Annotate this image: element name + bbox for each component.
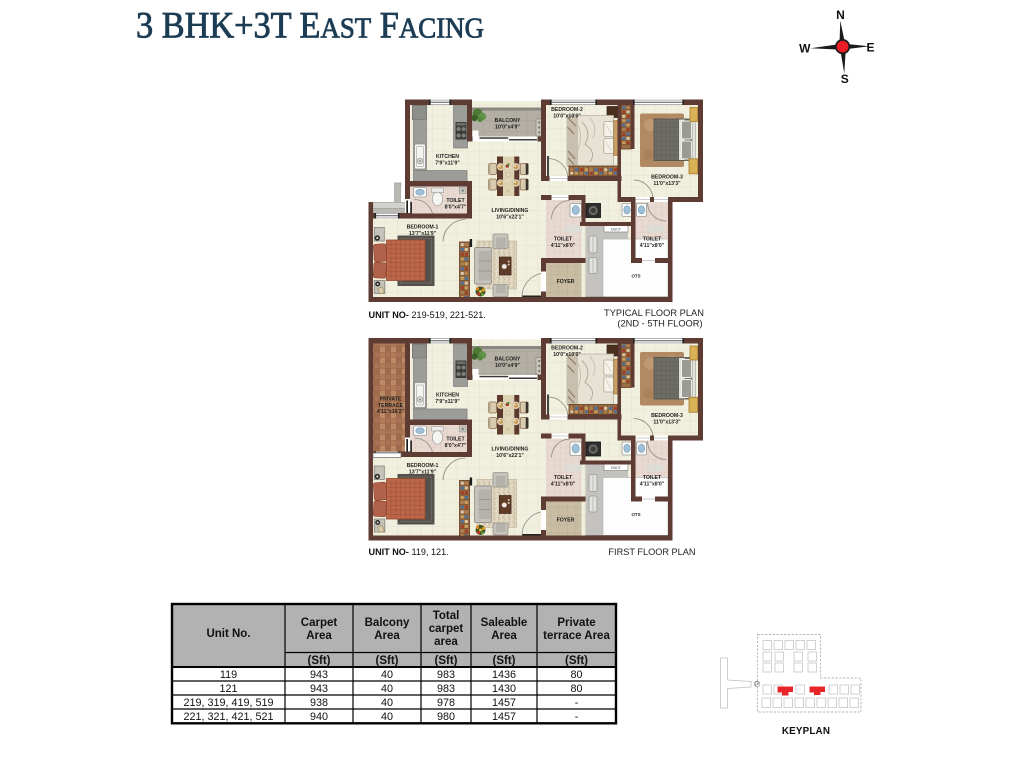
svg-text:3 BHK+3T EAST FACING: 3 BHK+3T EAST FACING <box>136 6 484 47</box>
svg-text:4'11"x16'2": 4'11"x16'2" <box>377 409 405 415</box>
svg-text:OTS: OTS <box>631 274 640 279</box>
svg-text:1430: 1430 <box>492 683 516 695</box>
svg-text:Area: Area <box>306 630 332 642</box>
svg-text:943: 943 <box>310 669 328 681</box>
svg-text:S: S <box>841 72 849 86</box>
svg-text:943: 943 <box>310 683 328 695</box>
svg-text:10'0"x10'0": 10'0"x10'0" <box>553 113 581 119</box>
svg-text:Total: Total <box>433 610 460 622</box>
svg-text:Area: Area <box>491 630 517 642</box>
svg-text:219, 319, 419, 519: 219, 319, 419, 519 <box>183 697 273 709</box>
svg-text:(Sft): (Sft) <box>565 655 588 667</box>
svg-text:BEDROOM-2: BEDROOM-2 <box>551 107 583 113</box>
svg-text:7'9"x11'9": 7'9"x11'9" <box>435 160 460 166</box>
svg-text:11'0"x13'3": 11'0"x13'3" <box>653 419 681 425</box>
svg-text:1436: 1436 <box>492 669 516 681</box>
svg-text:BEDROOM-3: BEDROOM-3 <box>651 413 683 419</box>
svg-text:Carpet: Carpet <box>301 617 338 629</box>
svg-text:TOILET: TOILET <box>643 475 662 481</box>
svg-text:UNIT NO- 119, 121.: UNIT NO- 119, 121. <box>369 547 449 557</box>
svg-text:10'6"x22'1": 10'6"x22'1" <box>496 453 524 459</box>
svg-text:80: 80 <box>570 683 582 695</box>
svg-text:938: 938 <box>310 697 328 709</box>
svg-text:-: - <box>575 697 579 709</box>
svg-text:BEDROOM-2: BEDROOM-2 <box>551 346 583 352</box>
svg-text:10'0"x10'0": 10'0"x10'0" <box>553 352 581 358</box>
svg-text:8'0"x4'7": 8'0"x4'7" <box>445 204 467 210</box>
svg-text:FIRST FLOOR PLAN: FIRST FLOOR PLAN <box>608 547 695 557</box>
svg-text:10'0"x4'9": 10'0"x4'9" <box>495 363 520 369</box>
svg-text:10'6"x22'1": 10'6"x22'1" <box>496 214 524 220</box>
svg-text:983: 983 <box>437 683 455 695</box>
svg-text:40: 40 <box>381 669 393 681</box>
svg-text:TOILET: TOILET <box>554 237 573 243</box>
svg-text:KITCHEN: KITCHEN <box>436 393 459 399</box>
svg-text:40: 40 <box>381 697 393 709</box>
svg-text:KEYPLAN: KEYPLAN <box>782 726 830 737</box>
svg-text:area: area <box>434 636 458 648</box>
svg-text:10'0"x4'9": 10'0"x4'9" <box>495 124 520 130</box>
svg-text:BEDROOM-1: BEDROOM-1 <box>407 225 439 231</box>
svg-text:121: 121 <box>219 683 237 695</box>
svg-text:978: 978 <box>437 697 455 709</box>
svg-text:LIVING/DINING: LIVING/DINING <box>492 208 529 214</box>
svg-text:11'0"x13'3": 11'0"x13'3" <box>653 181 681 187</box>
svg-text:TOILET: TOILET <box>554 475 573 481</box>
svg-text:119: 119 <box>220 669 237 681</box>
svg-text:Unit No.: Unit No. <box>206 628 250 640</box>
svg-text:40: 40 <box>381 683 393 695</box>
svg-text:E: E <box>867 41 875 55</box>
svg-text:PRIVATE: PRIVATE <box>380 397 402 403</box>
svg-text:terrace Area: terrace Area <box>543 630 610 642</box>
svg-text:P: P <box>755 682 759 688</box>
svg-text:(Sft): (Sft) <box>493 655 516 667</box>
svg-text:(Sft): (Sft) <box>308 655 331 667</box>
svg-text:BALCONY: BALCONY <box>495 118 521 124</box>
svg-text:221, 321, 421, 521: 221, 321, 421, 521 <box>183 711 273 723</box>
svg-text:FOYER: FOYER <box>557 279 575 285</box>
svg-text:1457: 1457 <box>492 697 516 709</box>
svg-text:980: 980 <box>437 711 455 723</box>
svg-text:TERRACE: TERRACE <box>378 403 404 409</box>
svg-text:80: 80 <box>570 669 582 681</box>
svg-text:(Sft): (Sft) <box>376 655 399 667</box>
svg-text:Private: Private <box>557 617 595 629</box>
svg-text:13'7"x11'9": 13'7"x11'9" <box>409 469 437 475</box>
svg-text:TYPICAL FLOOR PLAN: TYPICAL FLOOR PLAN <box>604 308 704 318</box>
svg-text:TOILET: TOILET <box>446 198 465 204</box>
svg-text:Area: Area <box>374 630 400 642</box>
svg-text:4'11"x8'0": 4'11"x8'0" <box>640 243 665 249</box>
svg-text:4'11"x8'0": 4'11"x8'0" <box>551 481 576 487</box>
svg-text:8'0"x4'7": 8'0"x4'7" <box>445 443 467 449</box>
svg-text:BEDROOM-1: BEDROOM-1 <box>407 463 439 469</box>
svg-text:KITCHEN: KITCHEN <box>436 154 459 160</box>
svg-text:DUCT: DUCT <box>611 466 622 470</box>
svg-text:4'11"x8'0": 4'11"x8'0" <box>551 243 576 249</box>
svg-text:TOILET: TOILET <box>643 237 662 243</box>
svg-text:BEDROOM-3: BEDROOM-3 <box>651 175 683 181</box>
svg-text:940: 940 <box>310 711 328 723</box>
svg-text:DUCT: DUCT <box>611 228 622 232</box>
svg-text:OTS: OTS <box>631 512 640 517</box>
svg-text:FOYER: FOYER <box>557 518 575 524</box>
svg-text:7'9"x11'9": 7'9"x11'9" <box>435 399 460 405</box>
svg-text:-: - <box>575 711 579 723</box>
svg-text:UNIT NO- 219-519, 221-521.: UNIT NO- 219-519, 221-521. <box>369 310 486 320</box>
svg-text:Saleable: Saleable <box>481 617 528 629</box>
svg-text:(Sft): (Sft) <box>435 655 458 667</box>
svg-text:LIVING/DINING: LIVING/DINING <box>492 447 529 453</box>
svg-text:TOILET: TOILET <box>446 437 465 443</box>
svg-text:Balcony: Balcony <box>365 617 410 629</box>
svg-text:983: 983 <box>437 669 455 681</box>
svg-text:(2ND - 5TH FLOOR): (2ND - 5TH FLOOR) <box>617 319 702 329</box>
svg-text:1457: 1457 <box>492 711 516 723</box>
svg-text:4'11"x8'0": 4'11"x8'0" <box>640 481 665 487</box>
svg-text:W: W <box>799 42 811 56</box>
svg-text:N: N <box>836 8 845 22</box>
svg-text:carpet: carpet <box>429 623 464 635</box>
svg-text:BALCONY: BALCONY <box>495 357 521 363</box>
svg-text:13'7"x11'9": 13'7"x11'9" <box>409 231 437 237</box>
svg-text:40: 40 <box>381 711 393 723</box>
